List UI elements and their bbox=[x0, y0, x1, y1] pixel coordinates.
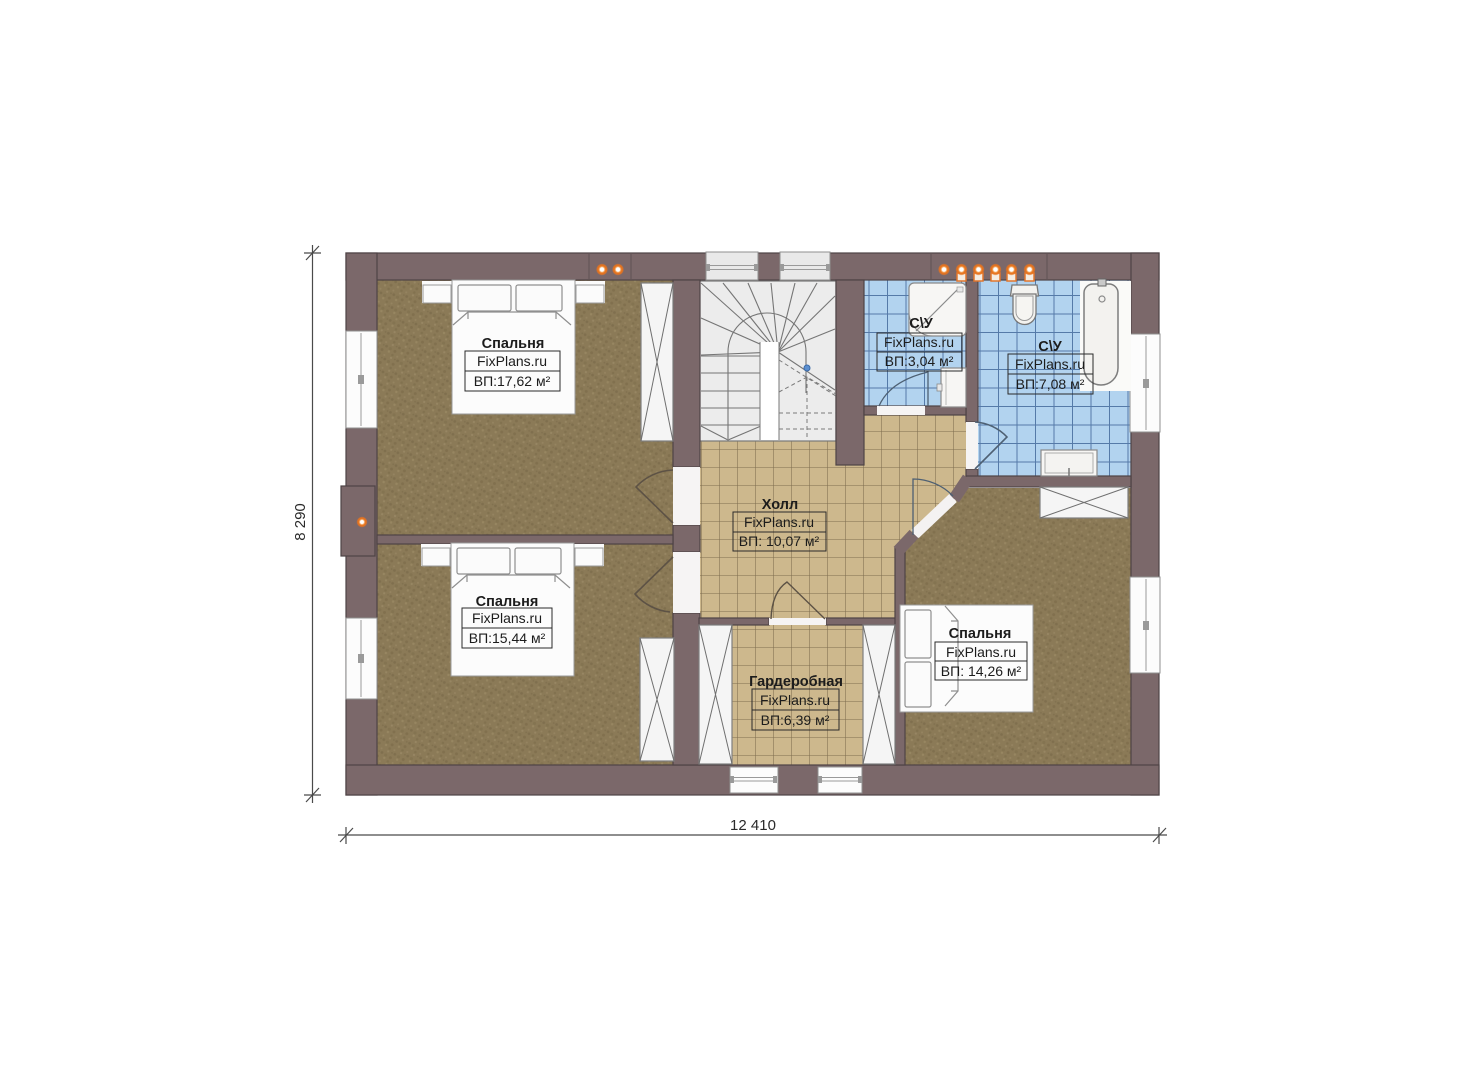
svg-text:ВП:15,44 м²: ВП:15,44 м² bbox=[469, 630, 546, 646]
svg-text:С\У: С\У bbox=[909, 316, 934, 332]
svg-text:ВП:7,08 м²: ВП:7,08 м² bbox=[1016, 376, 1085, 392]
svg-text:FixPlans.ru: FixPlans.ru bbox=[744, 514, 814, 530]
svg-text:Спальня: Спальня bbox=[482, 336, 545, 352]
svg-text:ВП:6,39 м²: ВП:6,39 м² bbox=[761, 712, 830, 728]
svg-text:FixPlans.ru: FixPlans.ru bbox=[472, 610, 542, 626]
svg-text:С\У: С\У bbox=[1038, 339, 1063, 355]
svg-text:FixPlans.ru: FixPlans.ru bbox=[1015, 356, 1085, 372]
svg-text:FixPlans.ru: FixPlans.ru bbox=[946, 644, 1016, 660]
svg-text:Спальня: Спальня bbox=[949, 626, 1012, 642]
svg-text:FixPlans.ru: FixPlans.ru bbox=[884, 334, 954, 350]
svg-text:Гардеробная: Гардеробная bbox=[749, 674, 843, 690]
svg-text:8 290: 8 290 bbox=[292, 503, 309, 541]
svg-text:ВП: 10,07 м²: ВП: 10,07 м² bbox=[739, 533, 820, 549]
svg-text:FixPlans.ru: FixPlans.ru bbox=[760, 692, 830, 708]
svg-text:12 410: 12 410 bbox=[730, 817, 776, 834]
svg-text:FixPlans.ru: FixPlans.ru bbox=[477, 353, 547, 369]
svg-text:ВП:3,04 м²: ВП:3,04 м² bbox=[885, 353, 954, 369]
svg-text:ВП: 14,26 м²: ВП: 14,26 м² bbox=[941, 663, 1022, 679]
svg-text:ВП:17,62 м²: ВП:17,62 м² bbox=[474, 373, 551, 389]
svg-text:Холл: Холл bbox=[762, 497, 798, 513]
